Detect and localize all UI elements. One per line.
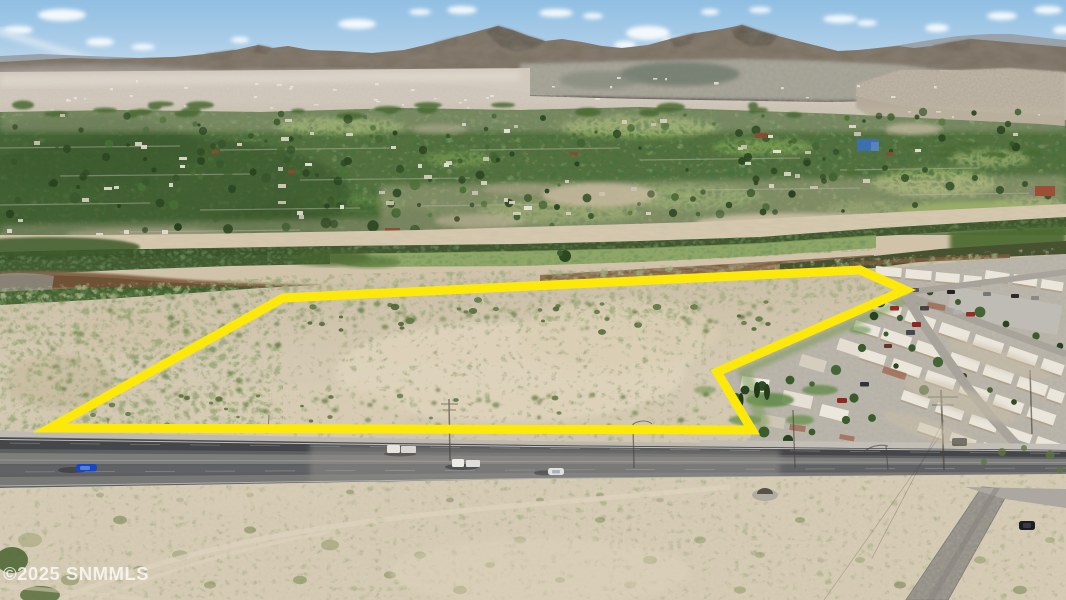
svg-text:©2025 SNMMLS: ©2025 SNMMLS	[3, 563, 149, 584]
